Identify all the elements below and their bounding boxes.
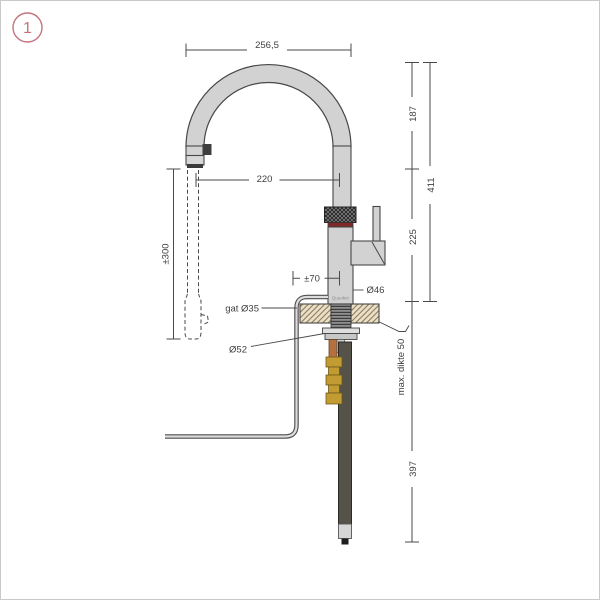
brand-label: Quooker — [332, 296, 350, 301]
dim-arc-width-label: 256,5 — [255, 40, 279, 51]
faucet-dimension-diagram: 1 Quooker — [1, 1, 599, 599]
dim-body-diameter-label: Ø46 — [367, 285, 385, 296]
dim-base-offset-label: ±70 — [304, 274, 320, 285]
threaded-shank — [331, 304, 351, 328]
dim-under-counter-label: 397 — [408, 461, 419, 477]
spray-head-lower — [186, 156, 204, 166]
dim-height-upper-label: 187 — [408, 106, 419, 122]
mounting-nut — [325, 334, 357, 340]
index-badge: 1 — [13, 13, 42, 42]
lever-handle-bar — [373, 207, 380, 243]
spray-head-upper — [186, 146, 204, 156]
faucet-drawing: Quooker — [165, 65, 385, 545]
index-badge-number: 1 — [23, 20, 32, 37]
knurled-ring — [325, 207, 357, 223]
dim-counter-thickness-label: max. dikte 50 — [396, 339, 407, 396]
countertop-left — [300, 304, 331, 323]
leader-counter-thickness — [380, 322, 410, 332]
dim-nut-diameter-label: Ø52 — [229, 345, 247, 356]
extended-spray-head-dashed — [185, 170, 209, 339]
lever-base — [351, 241, 385, 265]
faucet-body — [328, 227, 353, 304]
dim-hole-label: gat Ø35 — [225, 304, 259, 315]
dim-total-height-label: 411 — [426, 177, 437, 192]
dim-reach-label: 220 — [257, 174, 273, 185]
gooseneck-arc — [186, 65, 351, 147]
spray-head-clip — [203, 144, 212, 155]
countertop-right — [351, 304, 379, 323]
spec-sheet-page: 1 Quooker — [0, 0, 600, 600]
riser-pipe — [333, 146, 351, 209]
red-band — [328, 223, 353, 228]
brass-fittings — [326, 357, 342, 404]
mounting-washer — [323, 328, 360, 334]
aerator-tip — [187, 164, 203, 168]
dim-hose-extension-label: ±300 — [161, 243, 172, 264]
dim-line-heights — [405, 63, 419, 302]
leader-nut-diameter — [251, 334, 325, 347]
tube-end-cap — [339, 524, 352, 539]
dim-line-under-counter — [405, 302, 419, 542]
dim-height-lower-label: 225 — [408, 229, 419, 245]
tube-end-nub — [342, 539, 349, 545]
hose-weight-tube — [339, 342, 352, 524]
